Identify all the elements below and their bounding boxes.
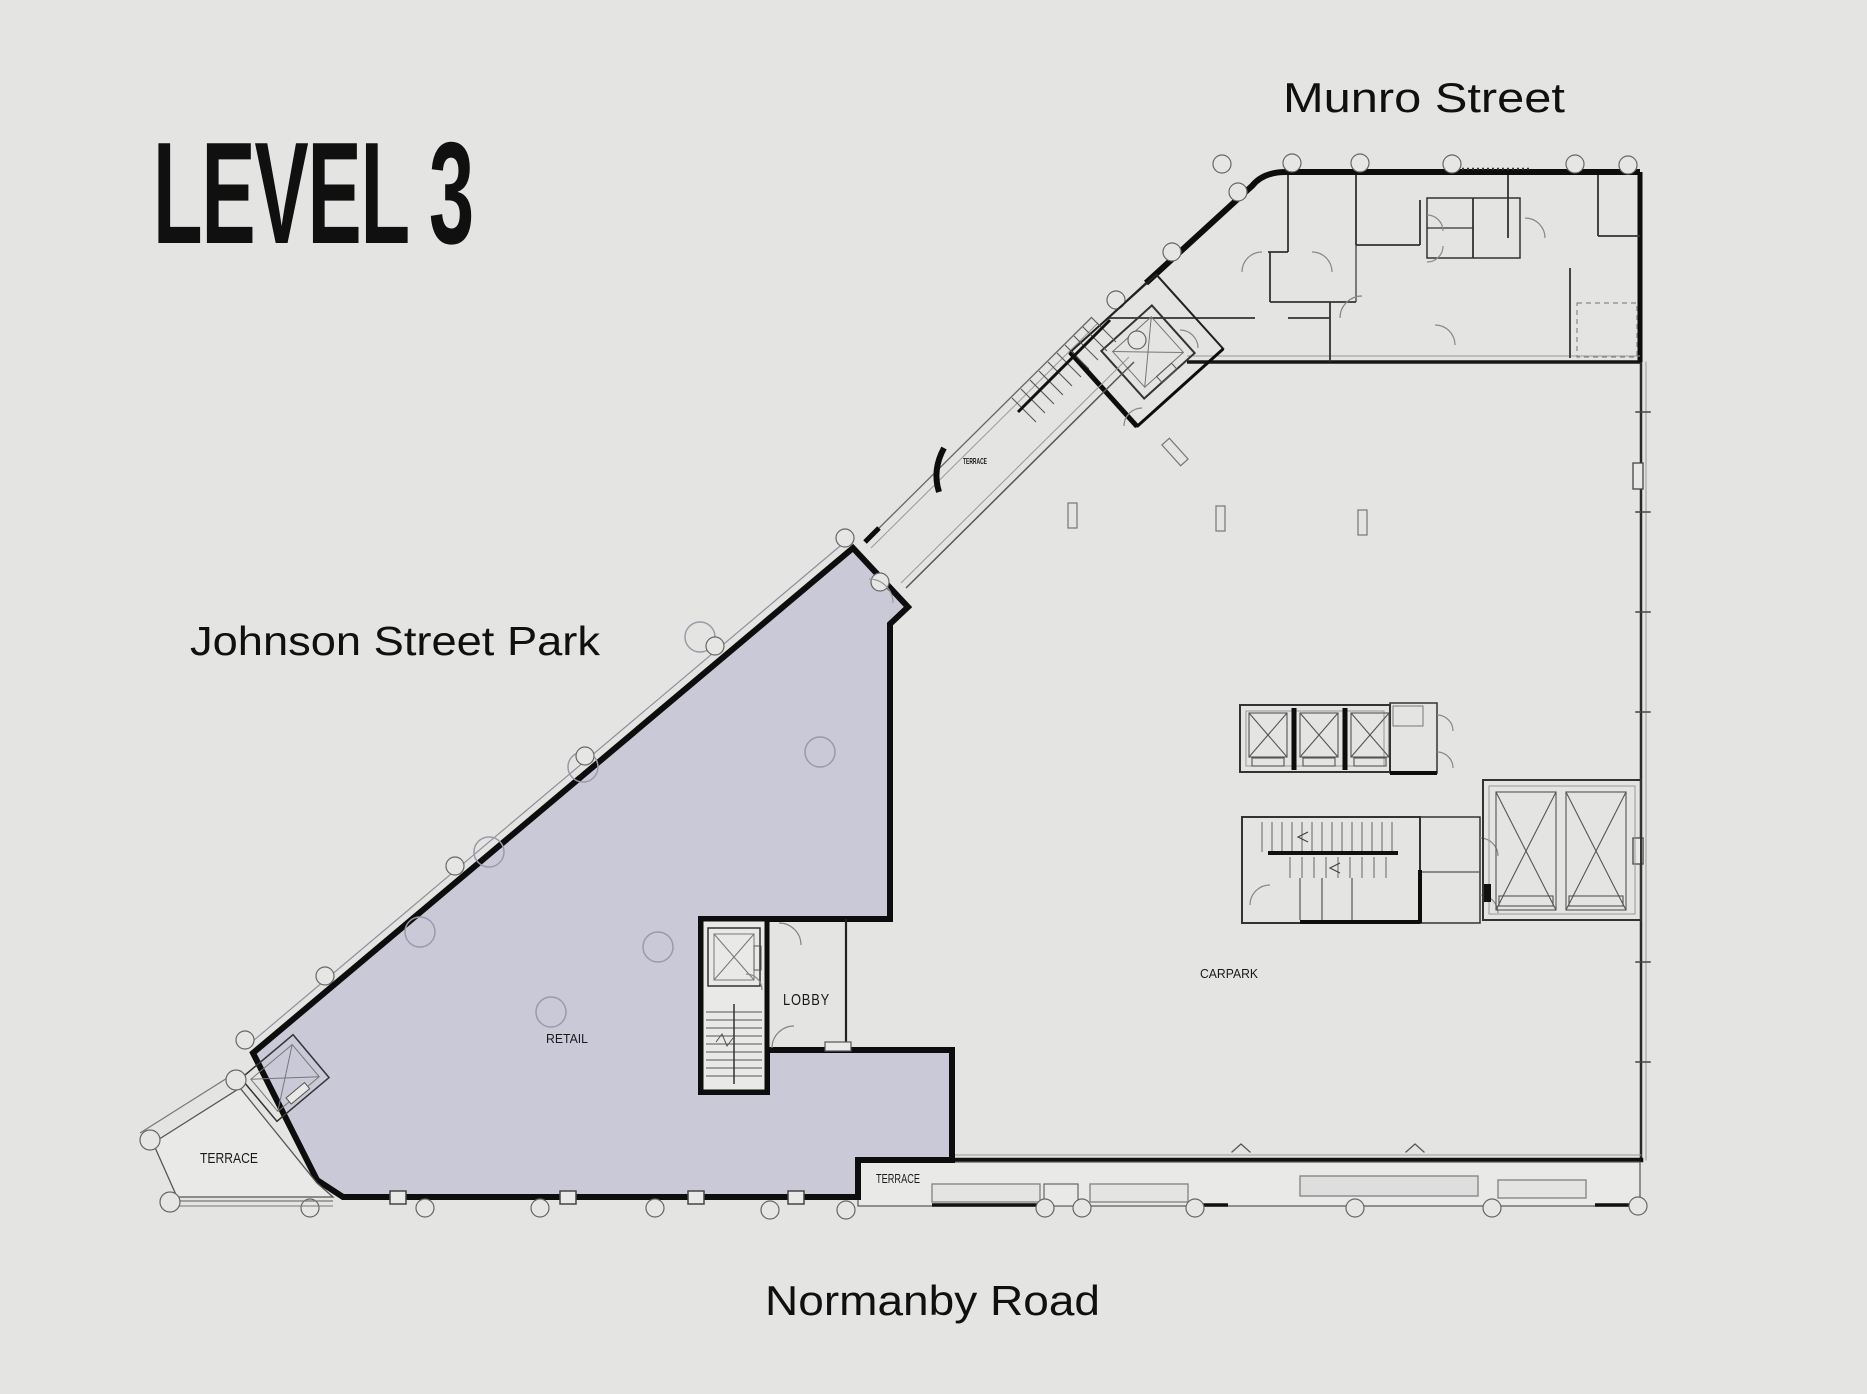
street-label-johnson-park: Johnson Street Park <box>190 618 601 664</box>
room-label-retail: RETAIL <box>546 1032 588 1046</box>
street-label-munro: Munro Street <box>1283 74 1565 121</box>
room-label-terrace-left: TERRACE <box>200 1151 258 1167</box>
room-label-lobby: LOBBY <box>783 992 830 1009</box>
room-label-terrace-link: TERRACE <box>963 456 987 466</box>
page-title: LEVEL 3 <box>153 112 473 274</box>
street-label-normanby: Normanby Road <box>765 1277 1100 1324</box>
room-label-terrace-bottom: TERRACE <box>876 1171 920 1186</box>
room-label-carpark: CARPARK <box>1200 966 1258 981</box>
floorplan-drawing: LEVEL 3 Munro Street Johnson Street Park… <box>0 0 1867 1394</box>
floorplan-page: LEVEL 3 Munro Street Johnson Street Park… <box>0 0 1867 1394</box>
